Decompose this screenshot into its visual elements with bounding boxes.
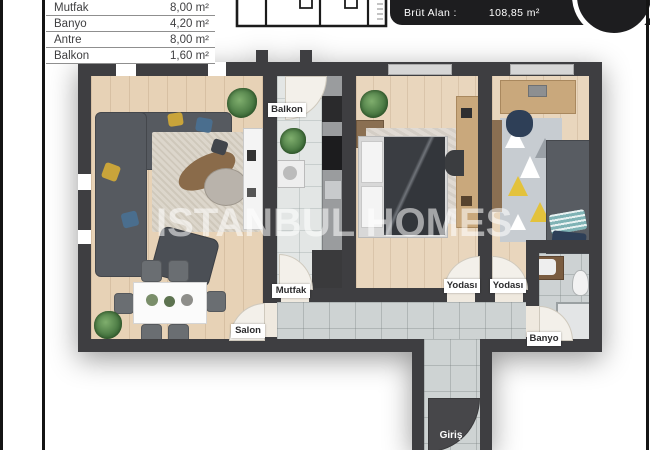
brut-alan-label: Brüt Alan :	[404, 7, 457, 19]
room-name: Mutfak	[54, 2, 89, 14]
room-name: Balkon	[54, 50, 89, 62]
room-name: Banyo	[54, 18, 87, 30]
wall-hall-top	[277, 288, 526, 302]
balcony-wall-stub	[256, 50, 268, 62]
tv-unit-item	[247, 150, 256, 161]
window	[208, 62, 226, 76]
table-row: Banyo 4,20 m²	[46, 16, 215, 32]
brut-alan-value: 108,85 m²	[489, 7, 540, 19]
room-name: Antre	[54, 34, 82, 46]
table-row: Mutfak 8,00 m²	[46, 0, 215, 16]
wardrobe	[492, 120, 502, 212]
bathroom-sink	[536, 259, 556, 275]
desk-item	[461, 108, 472, 118]
dining-chair	[168, 260, 189, 282]
watermark: ISTANBUL HOMES	[156, 201, 512, 246]
wall-right	[589, 62, 602, 352]
left-frame-line	[0, 0, 3, 450]
wall-bedroom1-bedroom2	[478, 76, 492, 302]
area-table: Mutfak 8,00 m² Banyo 4,20 m² Antre 8,00 …	[46, 0, 215, 64]
window	[510, 64, 574, 75]
wall-corridor-right	[480, 339, 492, 450]
room-label-bedroom2: Yodası	[490, 279, 526, 293]
room-area: 1,60 m²	[170, 50, 209, 62]
dining-chair	[114, 293, 134, 314]
room-area: 8,00 m²	[170, 2, 209, 14]
room-label-balcony: Balkon	[268, 103, 306, 117]
key-plan-outline	[230, 0, 394, 28]
window	[388, 64, 452, 75]
sofa-left-section	[95, 112, 147, 277]
refrigerator	[322, 96, 342, 122]
desk-chair	[444, 150, 464, 176]
dining-chair	[141, 260, 162, 282]
room-label-salon: Salon	[231, 324, 265, 338]
toilet	[572, 270, 589, 296]
wall-kitchen-bedroom1	[342, 76, 356, 288]
wall-left	[78, 62, 91, 352]
dining-chair	[206, 291, 226, 312]
wall-corridor-left	[412, 339, 424, 450]
table-row: Balkon 1,60 m²	[46, 48, 215, 64]
dining-plate	[181, 294, 193, 306]
window	[116, 62, 136, 76]
right-frame-line	[646, 0, 649, 450]
pillow-yellow	[167, 112, 184, 127]
balcony-wall-stub	[300, 50, 312, 62]
desk-chair	[506, 110, 533, 137]
floor-plan-page: Mutfak 8,00 m² Banyo 4,20 m² Antre 8,00 …	[0, 0, 650, 450]
window	[78, 230, 91, 244]
pillow-blue	[195, 117, 213, 134]
table-border-line	[42, 0, 45, 450]
room-area: 8,00 m²	[170, 34, 209, 46]
room-area: 4,20 m²	[170, 18, 209, 30]
hall-floor	[277, 302, 526, 339]
table-row: Antre 8,00 m²	[46, 32, 215, 48]
window	[78, 174, 91, 190]
kitchen-lower-cabinet	[312, 250, 342, 288]
room-label-kitchen: Mutfak	[272, 284, 310, 298]
dining-plate	[146, 294, 158, 306]
washing-machine-door	[283, 166, 297, 180]
room-label-entry: Giriş	[430, 430, 472, 441]
dining-plate	[164, 296, 175, 307]
door-opening-salon	[263, 303, 277, 337]
wall-bathroom-top	[526, 240, 602, 253]
monitor	[528, 85, 547, 97]
stove	[322, 136, 342, 170]
tv-unit-item	[247, 188, 256, 197]
room-label-bedroom1: Yodası	[444, 279, 480, 293]
room-label-bathroom: Banyo	[527, 332, 561, 346]
bed-pillow	[361, 141, 383, 183]
kitchen-sink	[324, 180, 342, 200]
